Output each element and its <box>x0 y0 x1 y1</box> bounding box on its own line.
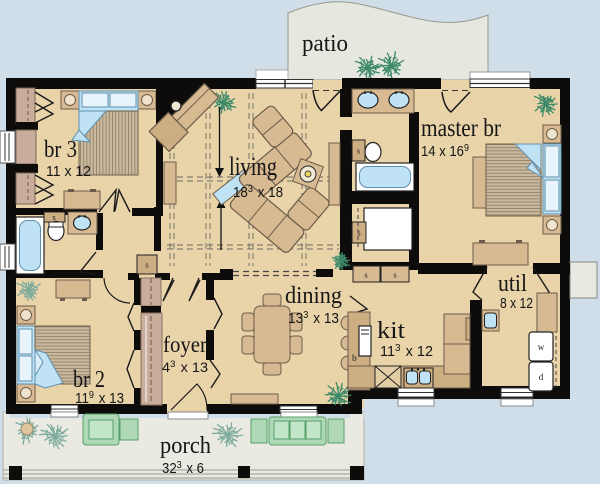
svg-text:porch: porch <box>160 433 211 459</box>
svg-text:foyer: foyer <box>163 332 207 357</box>
svg-text:living: living <box>229 152 277 181</box>
svg-text:util: util <box>498 271 527 297</box>
svg-text:8 x 12: 8 x 12 <box>500 296 533 312</box>
svg-text:14 x 169: 14 x 169 <box>421 143 470 160</box>
svg-text:11 x 12: 11 x 12 <box>46 164 91 180</box>
svg-text:s: s <box>364 270 367 280</box>
svg-text:b: b <box>352 354 357 364</box>
svg-text:43 x 13: 43 x 13 <box>162 359 208 375</box>
svg-text:133 x 13: 133 x 13 <box>288 310 339 327</box>
svg-text:patio: patio <box>302 31 348 57</box>
svg-text:113 x 12: 113 x 12 <box>380 343 433 360</box>
svg-text:183 x 18: 183 x 18 <box>233 184 283 201</box>
svg-text:s: s <box>145 260 148 270</box>
svg-text:master br: master br <box>421 115 502 142</box>
svg-text:d: d <box>539 372 544 382</box>
svg-text:w: w <box>538 342 545 352</box>
svg-text:kit: kit <box>377 318 405 344</box>
svg-text:s: s <box>52 212 55 222</box>
svg-text:323 x 6: 323 x 6 <box>162 460 204 477</box>
svg-text:119 x 13: 119 x 13 <box>75 390 124 407</box>
svg-text:br 3: br 3 <box>44 137 77 163</box>
svg-text:s: s <box>393 270 396 280</box>
svg-text:dining: dining <box>285 283 342 309</box>
svg-text:s: s <box>357 146 360 156</box>
